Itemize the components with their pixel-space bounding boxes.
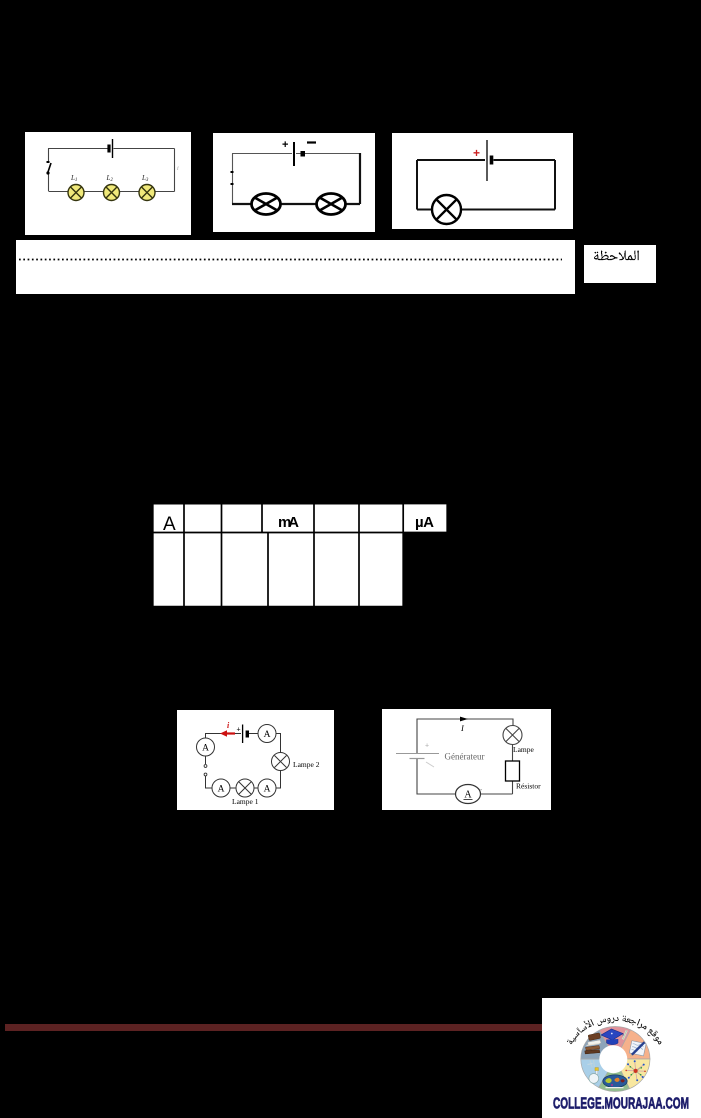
svg-text:+: +: [282, 139, 288, 151]
svg-text:Résistor: Résistor: [516, 782, 541, 791]
svg-text:Lampe 2: Lampe 2: [293, 760, 320, 769]
svg-text:Générateur: Générateur: [445, 752, 485, 762]
svg-text:i: i: [177, 166, 179, 172]
svg-text:Lampe 1: Lampe 1: [232, 797, 259, 806]
svg-text:A: A: [264, 730, 271, 740]
svg-text:L2: L2: [106, 174, 114, 183]
svg-text:L1: L1: [70, 174, 77, 183]
svg-text:A: A: [264, 785, 271, 795]
svg-text:i: i: [227, 721, 230, 730]
svg-text:A: A: [202, 744, 209, 754]
svg-text:-: -: [480, 787, 483, 794]
svg-text:I: I: [460, 723, 465, 733]
svg-text:+: +: [473, 146, 480, 160]
svg-text:+: +: [425, 743, 429, 750]
svg-text:mA: mA: [278, 514, 299, 531]
svg-text:A: A: [218, 785, 225, 795]
svg-text:COLLEGE.MOURAJAA.COM: COLLEGE.MOURAJAA.COM: [553, 1096, 689, 1113]
svg-text:A: A: [464, 790, 472, 801]
svg-text:A: A: [163, 514, 176, 535]
svg-text:+: +: [237, 727, 241, 734]
svg-text:L3: L3: [141, 174, 149, 183]
svg-text:Lampe: Lampe: [513, 745, 534, 754]
svg-text:µA: µA: [415, 514, 434, 531]
